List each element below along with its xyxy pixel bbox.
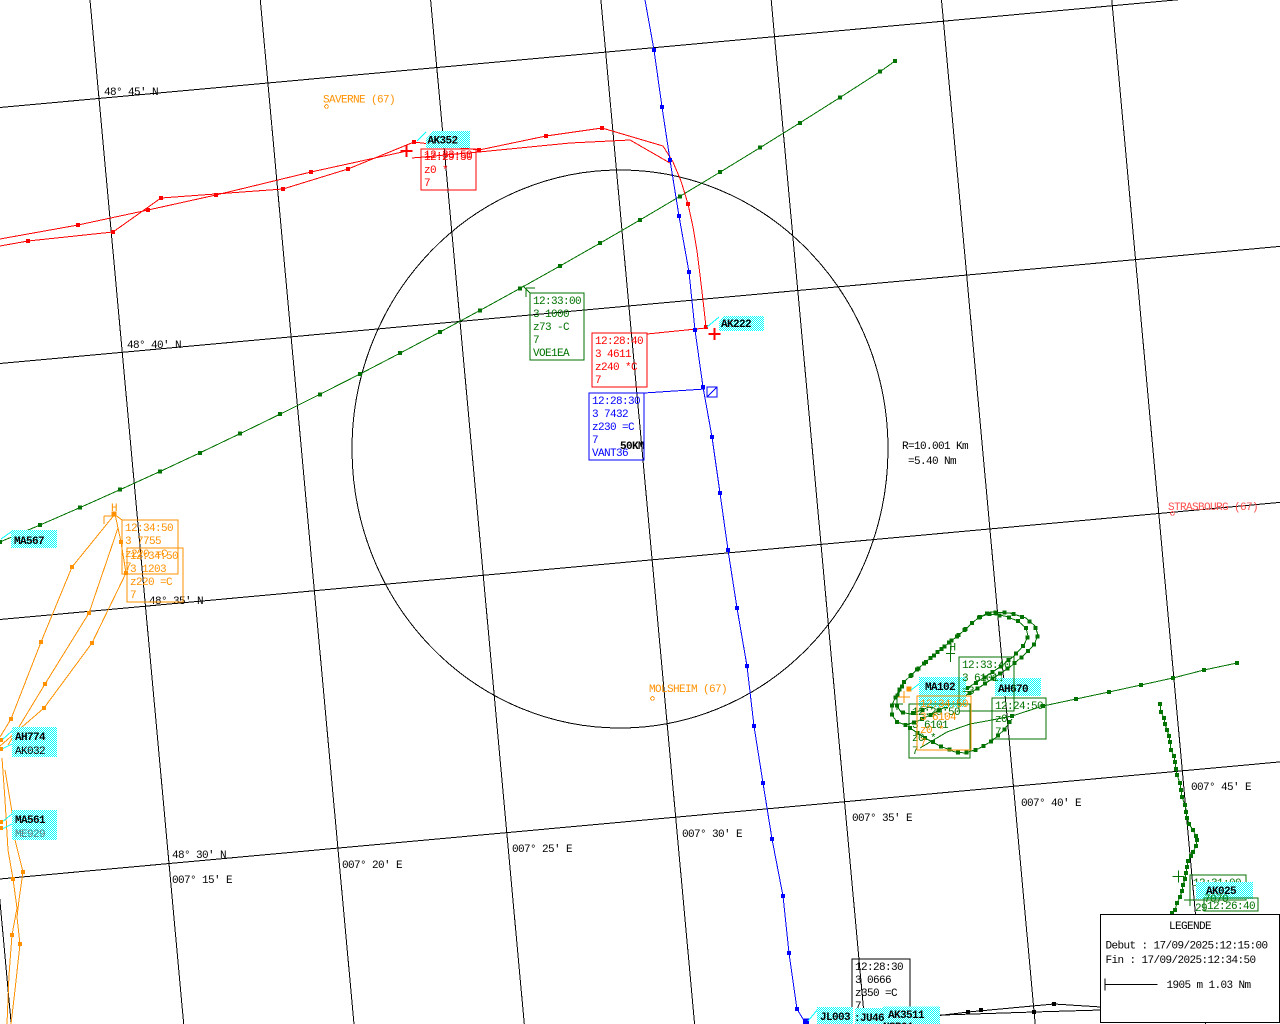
svg-text:7: 7 bbox=[533, 335, 539, 347]
svg-text:3 6104: 3 6104 bbox=[920, 712, 957, 724]
svg-text:12:26:40: 12:26:40 bbox=[1207, 901, 1255, 913]
svg-text:z230 =C: z230 =C bbox=[592, 422, 635, 434]
svg-text:12:34:50: 12:34:50 bbox=[920, 699, 968, 711]
svg-text:007° 20' E: 007° 20' E bbox=[342, 860, 403, 872]
svg-text:3 1000: 3 1000 bbox=[533, 309, 569, 321]
svg-text:1905 m 1.03 Nm: 1905 m 1.03 Nm bbox=[1167, 980, 1252, 992]
svg-text:7: 7 bbox=[592, 435, 598, 447]
svg-text:MA102: MA102 bbox=[925, 682, 955, 694]
svg-text:AH670: AH670 bbox=[998, 684, 1028, 696]
svg-text:z0: z0 bbox=[995, 714, 1007, 726]
svg-text:AK222: AK222 bbox=[721, 319, 751, 331]
svg-text:SAVERNE (67): SAVERNE (67) bbox=[323, 95, 395, 107]
svg-text:z240 *C: z240 *C bbox=[595, 362, 638, 374]
svg-text:MA561: MA561 bbox=[15, 815, 46, 827]
svg-text:AH774: AH774 bbox=[15, 732, 46, 744]
svg-text:007° 35' E: 007° 35' E bbox=[852, 813, 913, 825]
svg-text:12:28:40: 12:28:40 bbox=[595, 336, 643, 348]
svg-text:007° 40' E: 007° 40' E bbox=[1021, 798, 1082, 810]
svg-text:7: 7 bbox=[920, 738, 926, 750]
svg-text:VANT36: VANT36 bbox=[592, 448, 628, 460]
svg-text:12:33:50: 12:33:50 bbox=[424, 150, 472, 162]
svg-text:z220 =C: z220 =C bbox=[130, 577, 173, 589]
svg-text:z0 *: z0 * bbox=[920, 725, 944, 737]
svg-text:7: 7 bbox=[595, 375, 601, 387]
svg-text:AK032: AK032 bbox=[15, 746, 45, 758]
svg-text:z0 *: z0 * bbox=[424, 165, 448, 177]
svg-text:VOE1EA: VOE1EA bbox=[533, 348, 570, 360]
svg-text:7: 7 bbox=[130, 590, 136, 602]
svg-text:LEGENDE: LEGENDE bbox=[1169, 921, 1212, 933]
svg-text:3 4611: 3 4611 bbox=[595, 349, 632, 361]
svg-text:MOLSHEIM (67): MOLSHEIM (67) bbox=[649, 684, 727, 696]
svg-text:12:34:50: 12:34:50 bbox=[130, 551, 178, 563]
svg-text:007° 30' E: 007° 30' E bbox=[682, 829, 743, 841]
svg-text:z73 -C: z73 -C bbox=[533, 322, 570, 334]
svg-text:MA567: MA567 bbox=[14, 536, 44, 548]
svg-text:3 7432: 3 7432 bbox=[592, 409, 628, 421]
svg-text:3 7755: 3 7755 bbox=[125, 536, 161, 548]
svg-text:AK352: AK352 bbox=[428, 136, 458, 148]
svg-text:=5.40 Nm: =5.40 Nm bbox=[908, 456, 957, 468]
svg-text:12:28:30: 12:28:30 bbox=[855, 962, 903, 974]
svg-text:R=10.001 Km: R=10.001 Km bbox=[902, 441, 969, 453]
svg-text::JU46: :JU46 bbox=[854, 1013, 884, 1024]
svg-text:007° 45' E: 007° 45' E bbox=[1191, 782, 1252, 794]
svg-text:Debut : 17/09/2025:12:15:00: Debut : 17/09/2025:12:15:00 bbox=[1106, 941, 1268, 953]
svg-text:12:33:40: 12:33:40 bbox=[962, 660, 1010, 672]
svg-text:12:34:50: 12:34:50 bbox=[125, 523, 173, 535]
svg-text:3 0666: 3 0666 bbox=[855, 975, 891, 987]
svg-text:7: 7 bbox=[424, 178, 430, 190]
svg-text:STRASBOURG (67): STRASBOURG (67) bbox=[1168, 502, 1258, 514]
svg-text:3 1203: 3 1203 bbox=[130, 564, 166, 576]
svg-text:12:24:50: 12:24:50 bbox=[995, 701, 1043, 713]
svg-text:12:33:00: 12:33:00 bbox=[533, 296, 581, 308]
svg-text:AK3511: AK3511 bbox=[888, 1010, 925, 1022]
svg-text:z350 =C: z350 =C bbox=[855, 988, 898, 1000]
svg-text:29: 29 bbox=[1195, 903, 1207, 915]
svg-text:48° 40' N: 48° 40' N bbox=[127, 340, 181, 352]
svg-text:12:28:30: 12:28:30 bbox=[592, 396, 640, 408]
svg-text:007° 25' E: 007° 25' E bbox=[512, 844, 573, 856]
svg-text:48° 45' N: 48° 45' N bbox=[104, 87, 158, 99]
svg-text:7: 7 bbox=[995, 727, 1001, 739]
svg-text:Fin : 17/09/2025:12:34:50: Fin : 17/09/2025:12:34:50 bbox=[1106, 955, 1256, 967]
svg-text:ME929: ME929 bbox=[15, 829, 45, 841]
svg-text:48° 30' N: 48° 30' N bbox=[172, 850, 226, 862]
svg-text:007° 15' E: 007° 15' E bbox=[172, 875, 233, 887]
svg-text:3 6101↓: 3 6101↓ bbox=[962, 673, 1004, 685]
svg-text:JL003: JL003 bbox=[820, 1012, 851, 1024]
